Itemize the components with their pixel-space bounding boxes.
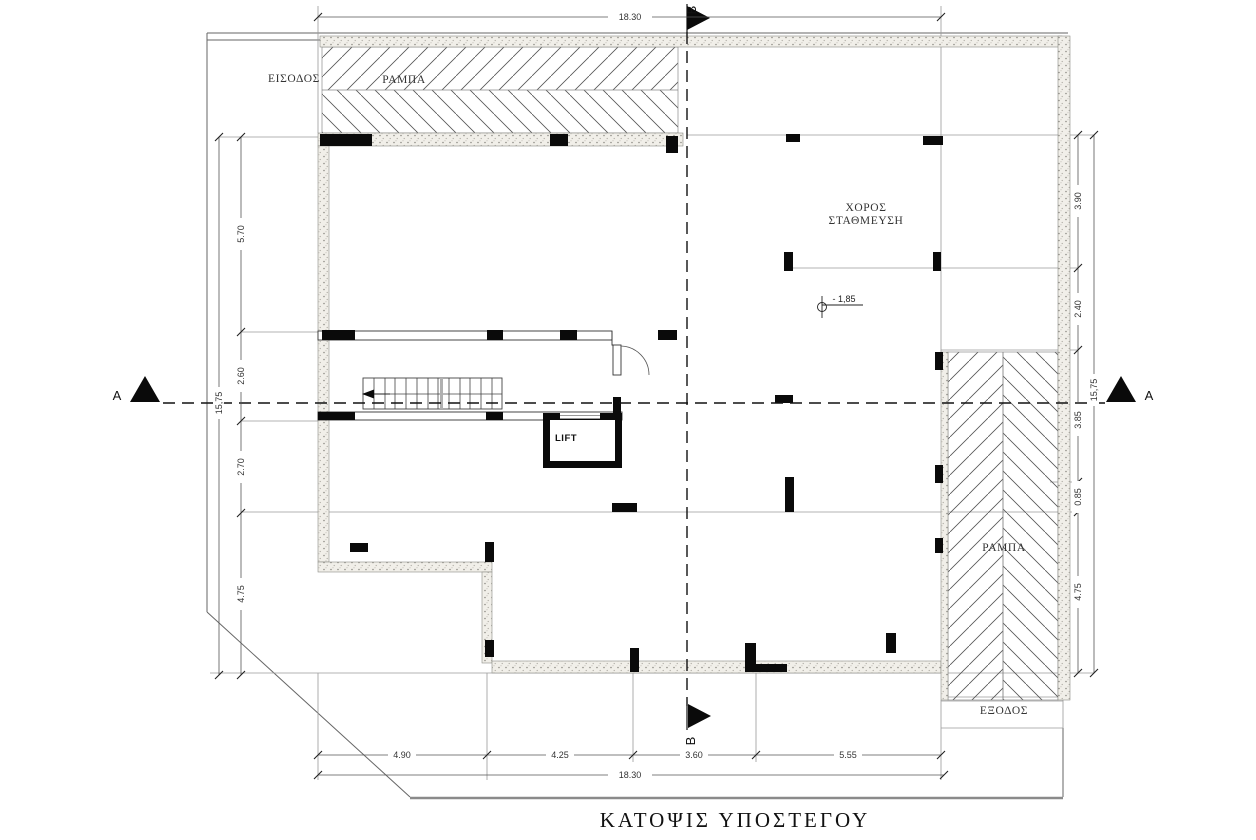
dim-right-overall: 15,75 [1089, 379, 1099, 402]
dim-bottom-overall: 18.30 [619, 770, 642, 780]
dim-left-1: 5.70 [236, 225, 246, 243]
dim-top-overall: 18.30 [619, 12, 642, 22]
dim-right-2: 2.40 [1073, 300, 1083, 318]
dim-bottom-1: 4.90 [393, 750, 411, 760]
dim-right-5: 4.75 [1073, 583, 1083, 601]
ramp-top-hatch [322, 47, 678, 133]
section-b-top-label: B [684, 6, 699, 15]
section-a-left-label: A [113, 388, 122, 403]
section-a-left-arrow [130, 376, 160, 402]
door-swing-arc [621, 346, 649, 375]
section-b-bottom-label: B [683, 737, 698, 746]
dim-right-4: 0.85 [1073, 488, 1083, 506]
dim-left-3: 2.70 [236, 458, 246, 476]
floor-plan-page: LIFT [0, 0, 1256, 840]
dim-left-4: 4.75 [236, 585, 246, 603]
ramp-top-label: ΡΑΜΠΑ [382, 74, 426, 86]
door-jog [612, 331, 613, 345]
level-value: - 1,85 [832, 294, 855, 304]
staircase [362, 378, 502, 409]
drawing-title: ΚΑΤΟΨΙΣ ΥΠΟΣΤΕΓΟΥ [600, 808, 871, 832]
dim-left-overall: 15,75 [214, 392, 224, 415]
ramp-right-hatch [948, 352, 1058, 700]
floor-plan-canvas: LIFT [0, 0, 1256, 840]
ramp-right-label: ΡΑΜΠΑ [982, 542, 1026, 554]
dim-bottom-4: 5.55 [839, 750, 857, 760]
section-b-bottom-arrow [688, 704, 711, 728]
section-a-right-arrow [1106, 376, 1136, 402]
exit-label: ΕΞΟΔΟΣ [980, 705, 1028, 717]
dim-bottom-2: 4.25 [551, 750, 569, 760]
entrance-label: ΕΙΣΟΔΟΣ [268, 73, 320, 85]
dim-left-2: 2.60 [236, 367, 246, 385]
parking-label-line1: ΧΟΡΟΣ [845, 202, 886, 214]
section-a-right-label: A [1145, 388, 1154, 403]
dim-bottom-3: 3.60 [685, 750, 703, 760]
dim-right-3: 3.85 [1073, 411, 1083, 429]
dim-right-1: 3.90 [1073, 192, 1083, 210]
lift-label: LIFT [555, 433, 577, 444]
parking-label-line2: ΣΤΑΘΜΕΥΣΗ [829, 215, 904, 227]
